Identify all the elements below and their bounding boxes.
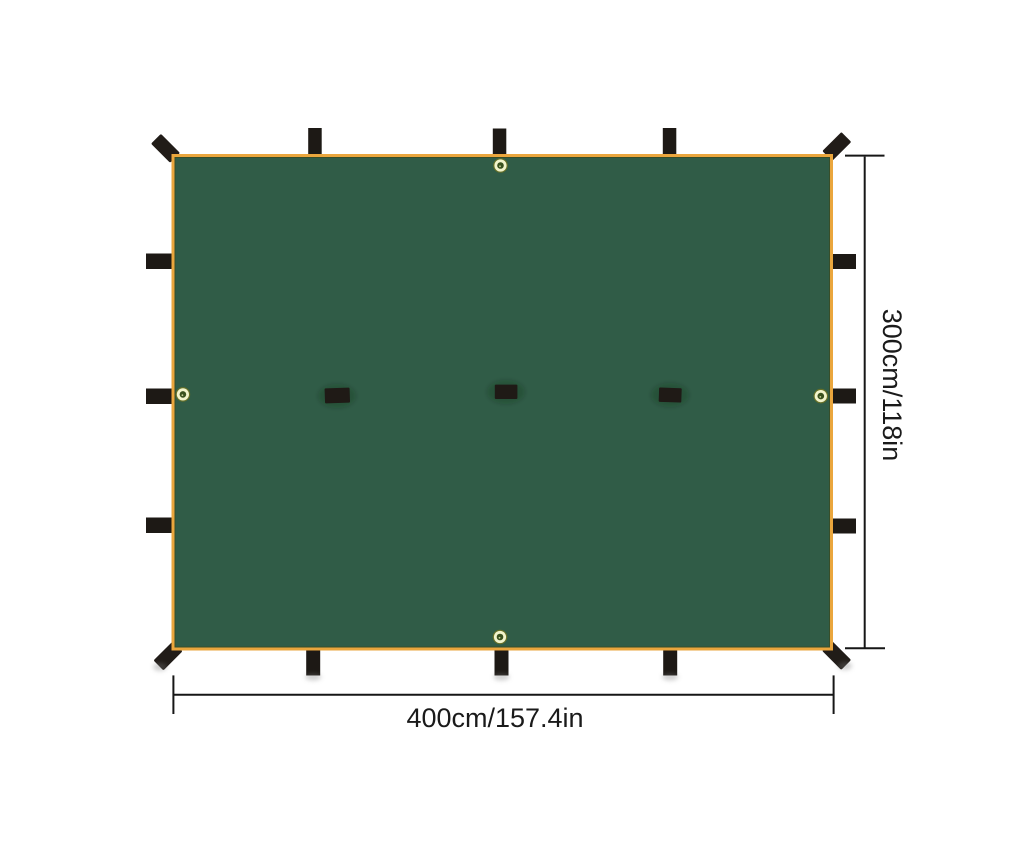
svg-text:300cm/118in: 300cm/118in: [877, 309, 907, 462]
svg-text:400cm/157.4in: 400cm/157.4in: [406, 703, 583, 733]
